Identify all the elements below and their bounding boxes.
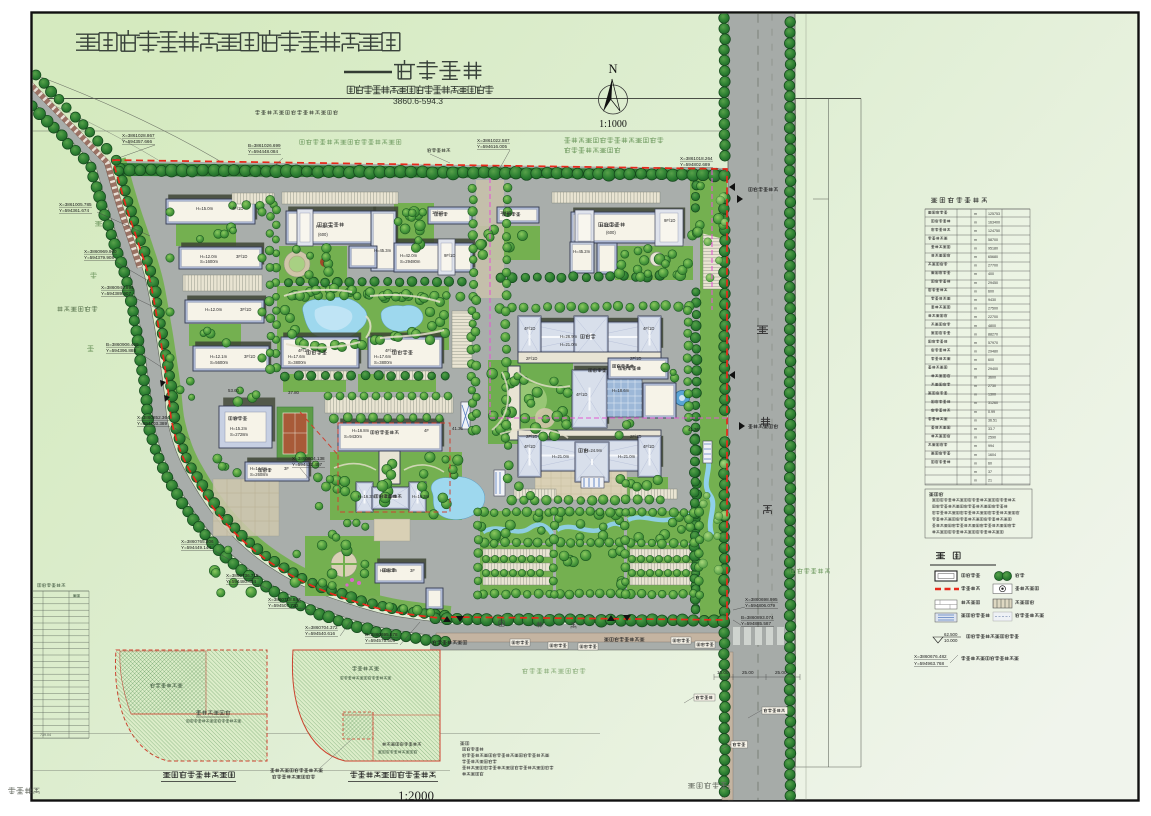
svg-text:400: 400 <box>988 272 994 276</box>
svg-text:Y=594885.587: Y=594885.587 <box>741 621 771 626</box>
svg-text:58700: 58700 <box>988 238 998 242</box>
svg-text:27700: 27700 <box>988 264 998 268</box>
svg-text:10.000: 10.000 <box>944 638 958 643</box>
svg-text:57970: 57970 <box>988 341 998 345</box>
svg-text:X=3860698.995: X=3860698.995 <box>745 597 778 602</box>
svg-text:m: m <box>974 444 977 448</box>
svg-text:1300: 1300 <box>988 393 996 397</box>
svg-text:Y=594806.079: Y=594806.079 <box>745 603 775 608</box>
svg-text:4F/1D: 4F/1D <box>524 326 535 331</box>
svg-text:H=17.6m: H=17.6m <box>288 354 306 359</box>
svg-text:3F/1D: 3F/1D <box>236 254 247 259</box>
svg-text:X=3860852.364: X=3860852.364 <box>137 415 170 420</box>
svg-text:4F/1D: 4F/1D <box>643 326 654 331</box>
svg-text:Y=594422.457: Y=594422.457 <box>292 462 322 467</box>
svg-text:X=3861022.587: X=3861022.587 <box>477 138 510 143</box>
svg-text:Y=594540.616: Y=594540.616 <box>305 631 335 636</box>
svg-text:1:1000: 1:1000 <box>599 119 627 130</box>
svg-text:600: 600 <box>988 289 994 293</box>
svg-text:X=3860718.843: X=3860718.843 <box>268 597 301 602</box>
svg-text:m: m <box>974 246 977 250</box>
svg-text:m: m <box>974 461 977 465</box>
svg-text:4800: 4800 <box>988 324 996 328</box>
svg-text:m: m <box>974 229 977 233</box>
svg-text:m: m <box>974 479 977 483</box>
svg-text:22700: 22700 <box>988 315 998 319</box>
svg-text:S=2728m: S=2728m <box>230 432 249 437</box>
svg-text:37.80: 37.80 <box>288 390 300 395</box>
svg-text:S=5600m: S=5600m <box>210 360 229 365</box>
svg-text:Y=594357.666: Y=594357.666 <box>122 139 152 144</box>
svg-text:m: m <box>974 212 977 216</box>
svg-text:Y=594575.508: Y=594575.508 <box>365 638 395 643</box>
svg-text:B=3860906.469: B=3860906.469 <box>106 342 139 347</box>
svg-text:H=26.9m: H=26.9m <box>560 334 578 339</box>
svg-text:m: m <box>974 332 977 336</box>
svg-text:X=3861018.264: X=3861018.264 <box>680 156 713 161</box>
svg-text:Y=594389.907: Y=594389.907 <box>101 291 131 296</box>
svg-text:62.500: 62.500 <box>944 632 958 637</box>
svg-text:Y=594403.389: Y=594403.389 <box>137 421 167 426</box>
svg-text:m: m <box>974 401 977 405</box>
svg-text:H=12.0m: H=12.0m <box>205 307 223 312</box>
svg-text:33.7: 33.7 <box>988 427 995 431</box>
svg-text:125753: 125753 <box>988 212 1000 216</box>
svg-text:Y=594361.674: Y=594361.674 <box>59 208 89 213</box>
svg-text:H=21.0m: H=21.0m <box>560 342 578 347</box>
svg-text:2730: 2730 <box>988 384 996 388</box>
svg-text:163400: 163400 <box>988 221 1000 225</box>
svg-text:Y=594449.144: Y=594449.144 <box>181 545 211 550</box>
svg-text:9F/1D: 9F/1D <box>444 253 455 258</box>
svg-text:Y=594616.005: Y=594616.005 <box>477 144 507 149</box>
svg-text:Y=594507.720: Y=594507.720 <box>268 603 298 608</box>
svg-text:: 1: : 1 <box>723 785 731 792</box>
svg-text:Y=594379.908: Y=594379.908 <box>84 255 114 260</box>
svg-text:m: m <box>974 221 977 225</box>
svg-text:m: m <box>974 470 977 474</box>
svg-text:2F/1D: 2F/1D <box>630 356 641 361</box>
svg-text:m: m <box>974 350 977 354</box>
svg-text:2590: 2590 <box>988 436 996 440</box>
svg-text:3F: 3F <box>410 568 415 573</box>
svg-text:S=9430m: S=9430m <box>344 434 363 439</box>
svg-text:H=15.0m: H=15.0m <box>196 206 214 211</box>
svg-text:Y=594963.768: Y=594963.768 <box>914 661 944 666</box>
svg-text:S=29480m: S=29480m <box>400 259 421 264</box>
svg-text:m: m <box>974 307 977 311</box>
svg-text:m: m <box>974 358 977 362</box>
svg-text:H=16.8m: H=16.8m <box>352 428 370 433</box>
svg-text:3F/1D: 3F/1D <box>240 307 251 312</box>
svg-text:H=24.9m: H=24.9m <box>585 448 603 453</box>
svg-text:H=12.1m: H=12.1m <box>210 354 228 359</box>
svg-text:124750: 124750 <box>988 229 1000 233</box>
svg-text:X=3860704.372: X=3860704.372 <box>305 625 338 630</box>
svg-text:m: m <box>974 281 977 285</box>
svg-text:25.00: 25.00 <box>775 670 787 675</box>
svg-text:m: m <box>974 427 977 431</box>
svg-text:Y=594448.084: Y=594448.084 <box>248 149 278 154</box>
svg-text:0.99: 0.99 <box>988 410 995 414</box>
svg-text:S=3800m: S=3800m <box>288 360 307 365</box>
svg-text:4F/1D: 4F/1D <box>643 444 654 449</box>
svg-text:m: m <box>974 375 977 379</box>
svg-text:X=3860804.138: X=3860804.138 <box>292 456 325 461</box>
svg-text:60: 60 <box>988 461 992 465</box>
svg-text:9F/1D: 9F/1D <box>664 218 675 223</box>
svg-text:29480: 29480 <box>988 350 998 354</box>
svg-text:m: m <box>974 384 977 388</box>
svg-text:4F/1D: 4F/1D <box>576 392 587 397</box>
svg-text:m: m <box>974 255 977 259</box>
svg-text:H=16.3m: H=16.3m <box>358 494 376 499</box>
svg-text:X=3860765.806: X=3860765.806 <box>181 539 214 544</box>
svg-text:4F: 4F <box>424 428 429 433</box>
svg-text:H=21.0m: H=21.0m <box>552 454 570 459</box>
svg-text:27500: 27500 <box>988 307 998 311</box>
svg-text:B=3860695.578: B=3860695.578 <box>365 632 398 637</box>
svg-text:m: m <box>974 272 977 276</box>
svg-text:H=17.6m: H=17.6m <box>374 354 392 359</box>
svg-text:X=3860940.894: X=3860940.894 <box>101 285 134 290</box>
svg-text:m: m <box>974 298 977 302</box>
svg-text:Y=594396.888: Y=594396.888 <box>106 348 136 353</box>
svg-text:m: m <box>974 238 977 242</box>
svg-text:H=21.0m: H=21.0m <box>618 454 636 459</box>
svg-text:X=3860969.960: X=3860969.960 <box>84 249 117 254</box>
svg-text:1:2000: 1:2000 <box>398 788 434 803</box>
svg-text:88270: 88270 <box>988 332 998 336</box>
svg-text:95180: 95180 <box>988 246 998 250</box>
svg-text:m: m <box>974 410 977 414</box>
svg-text:31260: 31260 <box>988 401 998 405</box>
svg-text:25.00: 25.00 <box>742 670 754 675</box>
svg-text:Y=594480.484: Y=594480.484 <box>226 579 256 584</box>
svg-text:B=3861026.699: B=3861026.699 <box>248 143 281 148</box>
svg-text:29450: 29450 <box>988 281 998 285</box>
svg-text:m: m <box>974 436 977 440</box>
svg-text:37: 37 <box>988 470 992 474</box>
svg-text:41.36: 41.36 <box>688 427 700 432</box>
svg-text:X=3861028.867: X=3861028.867 <box>122 133 155 138</box>
svg-text:21: 21 <box>988 479 992 483</box>
svg-text:600: 600 <box>988 358 994 362</box>
svg-text:X=3860736.715: X=3860736.715 <box>226 573 259 578</box>
svg-text:65680: 65680 <box>988 255 998 259</box>
svg-text:41.36: 41.36 <box>452 426 464 431</box>
svg-text:1604: 1604 <box>988 453 996 457</box>
svg-text:3F: 3F <box>284 466 289 471</box>
svg-text:9430: 9430 <box>988 298 996 302</box>
svg-text:m: m <box>974 453 977 457</box>
svg-text:2F/1D: 2F/1D <box>630 434 641 439</box>
svg-text:S=1600m: S=1600m <box>200 259 219 264</box>
svg-text:m: m <box>974 315 977 319</box>
svg-text:29400: 29400 <box>988 367 998 371</box>
svg-text:3600: 3600 <box>988 375 996 379</box>
svg-text:H=16.3m: H=16.3m <box>412 494 430 499</box>
svg-text:Y=594802.689: Y=594802.689 <box>680 162 710 167</box>
svg-text:739.04: 739.04 <box>40 733 51 737</box>
svg-text:S=3800m: S=3800m <box>374 360 393 365</box>
svg-text:H=18.6m: H=18.6m <box>612 388 630 393</box>
svg-text:X=3861005.785: X=3861005.785 <box>59 202 92 207</box>
svg-text:53.60: 53.60 <box>228 388 240 393</box>
svg-text:2F/1D: 2F/1D <box>526 434 537 439</box>
svg-text:4F/1D: 4F/1D <box>232 206 243 211</box>
svg-text:m: m <box>974 367 977 371</box>
svg-text:H=12.8m: H=12.8m <box>380 494 398 499</box>
svg-text:m: m <box>974 341 977 345</box>
svg-text:m: m <box>974 393 977 397</box>
svg-text:(600): (600) <box>318 232 328 237</box>
svg-text:N: N <box>608 62 617 76</box>
svg-text:36.51: 36.51 <box>988 418 997 422</box>
svg-text:994: 994 <box>988 444 994 448</box>
svg-text:3F/1D: 3F/1D <box>244 354 255 359</box>
svg-text:H=45.3m: H=45.3m <box>374 248 392 253</box>
svg-text:m: m <box>974 289 977 293</box>
svg-text:S=2608m: S=2608m <box>250 472 269 477</box>
svg-text:B=3860893.074: B=3860893.074 <box>741 615 774 620</box>
svg-text:H=42.0m: H=42.0m <box>400 253 418 258</box>
svg-text:10.00: 10.00 <box>717 670 729 675</box>
svg-text:2F/1D: 2F/1D <box>526 356 537 361</box>
svg-text:m: m <box>974 418 977 422</box>
svg-text:m: m <box>974 264 977 268</box>
svg-text:m: m <box>974 324 977 328</box>
svg-text:H=45.2m: H=45.2m <box>573 249 591 254</box>
svg-text:(600): (600) <box>606 230 616 235</box>
svg-text:4F/1D: 4F/1D <box>524 444 535 449</box>
svg-text:H=15.2m: H=15.2m <box>230 426 248 431</box>
svg-text:X=3860676.482: X=3860676.482 <box>914 654 947 659</box>
svg-text:3860.6-594.3: 3860.6-594.3 <box>393 96 443 106</box>
